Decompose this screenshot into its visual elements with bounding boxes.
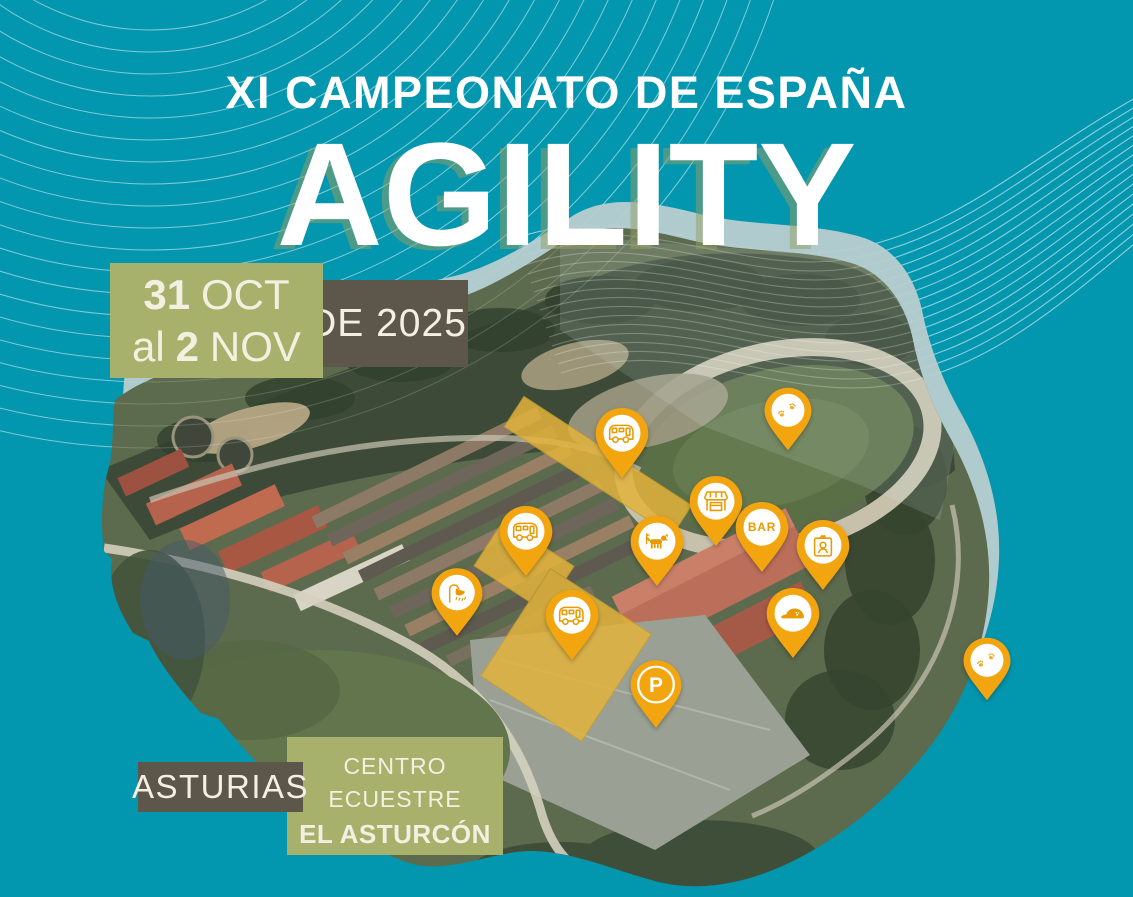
parking-label: P bbox=[649, 674, 663, 697]
map-pin-layer: BARP bbox=[0, 0, 1133, 897]
bar-label: BAR bbox=[748, 520, 776, 534]
poster: XI CAMPEONATO DE ESPAÑA AGILITY DE 2025 … bbox=[0, 0, 1133, 897]
map-pin-bar[interactable]: BAR bbox=[734, 500, 790, 574]
map-pin-caravan-south[interactable] bbox=[544, 588, 600, 662]
map-pin-caravan-west[interactable] bbox=[498, 504, 554, 578]
map-pin-paw-north[interactable] bbox=[763, 386, 813, 452]
map-pin-cap[interactable] bbox=[765, 586, 821, 660]
map-pin-showers[interactable] bbox=[430, 566, 484, 638]
map-pin-accreditation[interactable] bbox=[795, 518, 851, 592]
map-pin-parking[interactable]: P bbox=[629, 656, 683, 732]
map-pin-dog-agility[interactable] bbox=[629, 514, 685, 588]
map-pin-paw-east[interactable] bbox=[962, 636, 1012, 702]
map-pin-caravan-north[interactable] bbox=[594, 406, 650, 480]
